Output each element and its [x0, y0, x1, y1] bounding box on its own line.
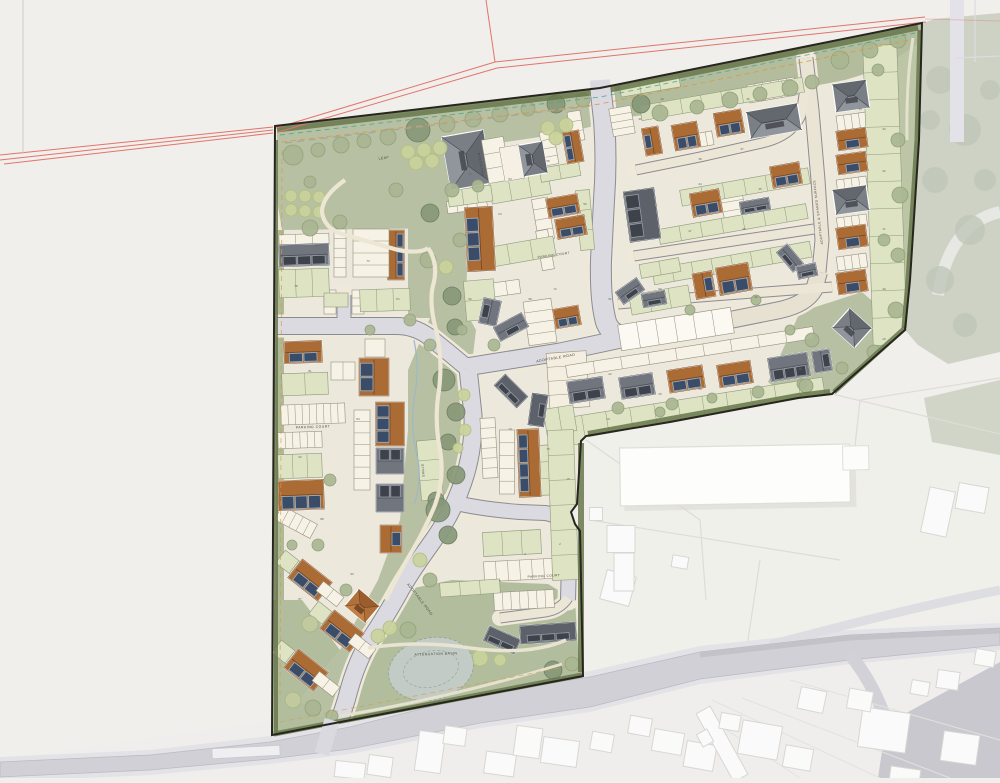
svg-text:40: 40 — [660, 97, 664, 101]
svg-text:28: 28 — [798, 367, 802, 371]
svg-text:71: 71 — [882, 227, 886, 231]
svg-text:74: 74 — [508, 427, 512, 431]
svg-text:75: 75 — [314, 244, 318, 248]
svg-text:58: 58 — [546, 159, 550, 163]
svg-text:19: 19 — [606, 417, 610, 421]
svg-text:87: 87 — [298, 597, 302, 601]
svg-text:26: 26 — [698, 387, 702, 391]
svg-text:30: 30 — [754, 295, 758, 299]
svg-text:62: 62 — [468, 172, 472, 176]
svg-text:30: 30 — [882, 287, 886, 291]
svg-text:25: 25 — [658, 392, 662, 396]
svg-text:51: 51 — [608, 297, 612, 301]
svg-text:45: 45 — [758, 187, 762, 191]
svg-text:68: 68 — [528, 297, 532, 301]
svg-text:36: 36 — [746, 97, 750, 101]
svg-text:56: 56 — [583, 202, 587, 206]
svg-text:47: 47 — [688, 229, 692, 233]
svg-text:52: 52 — [298, 455, 302, 459]
svg-text:P1: P1 — [396, 297, 400, 301]
svg-text:60: 60 — [508, 177, 512, 181]
svg-text:81: 81 — [308, 369, 312, 373]
svg-text:75: 75 — [546, 447, 550, 451]
svg-text:44: 44 — [698, 182, 702, 186]
svg-text:64: 64 — [498, 212, 502, 216]
svg-text:29: 29 — [882, 337, 886, 341]
svg-text:84: 84 — [356, 417, 360, 421]
svg-text:90: 90 — [350, 572, 354, 576]
svg-text:41: 41 — [638, 117, 642, 121]
svg-text:48: 48 — [742, 227, 746, 231]
svg-text:22: 22 — [608, 372, 612, 376]
svg-text:15: 15 — [566, 477, 570, 481]
svg-text:50: 50 — [658, 287, 662, 291]
svg-text:73: 73 — [366, 259, 370, 263]
svg-text:27: 27 — [750, 379, 754, 383]
svg-text:72: 72 — [553, 287, 557, 291]
svg-text:33: 33 — [882, 127, 886, 131]
svg-text:32: 32 — [882, 169, 886, 173]
svg-text:38: 38 — [698, 157, 702, 161]
svg-text:37: 37 — [740, 147, 744, 151]
svg-text:34: 34 — [858, 107, 862, 111]
svg-text:66: 66 — [468, 297, 472, 301]
svg-text:88: 88 — [320, 517, 324, 521]
svg-text:78: 78 — [294, 284, 298, 288]
